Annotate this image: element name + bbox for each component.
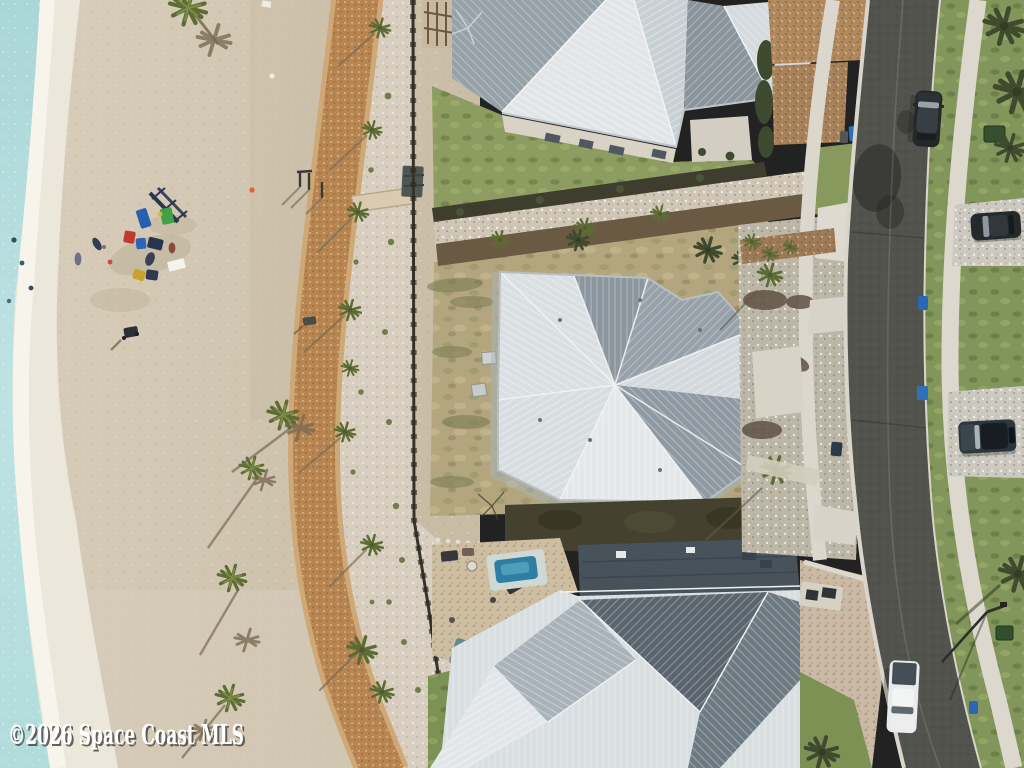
paver-pad (752, 346, 804, 418)
suv-on-road (907, 90, 945, 148)
parked-car (970, 211, 1022, 243)
trash-bin (830, 442, 842, 457)
center-house-roof (490, 272, 752, 510)
aerial-photo: ©2026 Space Coast MLS ©2026 Space Coast … (0, 0, 1024, 768)
watermark-text: ©2026 Space Coast MLS (8, 720, 244, 751)
bottom-house (428, 538, 800, 768)
white-truck-on-road (881, 660, 920, 734)
traffic-cone (249, 187, 254, 192)
garage-pad (690, 116, 752, 162)
watermark: ©2026 Space Coast MLS ©2026 Space Coast … (8, 720, 246, 753)
pickup-in-driveway (958, 419, 1017, 457)
